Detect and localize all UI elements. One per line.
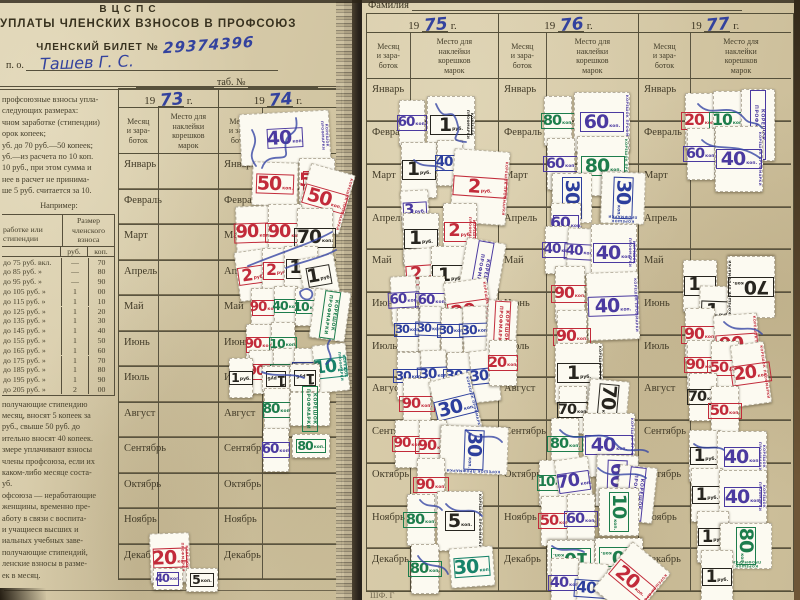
stamp-place-cell (159, 438, 218, 472)
rate-row: до 145 руб. »140 (2, 326, 114, 336)
stamp-value: 20 (613, 563, 642, 591)
month-label: Июль (119, 367, 159, 401)
stamp-unit: руб. (420, 172, 431, 178)
month-row: Июнь (119, 332, 218, 367)
year-handwritten: 75 (423, 14, 448, 36)
month-label: Октябрь (367, 464, 411, 506)
stamp-unit: руб. (717, 579, 728, 585)
month-row: Ноябрь (219, 509, 337, 544)
stamp-unit: коп. (429, 570, 440, 576)
stamp-unit: коп. (415, 123, 426, 129)
dues-stamp: 80коп. (264, 388, 290, 432)
text-line: женщины, временно пре- (2, 501, 116, 512)
stamp-value: 30 (417, 324, 431, 334)
month-row: Сентябрь (119, 438, 218, 473)
stamp-unit: руб. (705, 458, 716, 464)
stamp-value-box: 50коп. (708, 403, 742, 419)
stamp-place-cell (159, 190, 218, 224)
place-column-header: Место для наклейки корешков марок (691, 33, 791, 78)
dues-stamp: 60коп. (399, 100, 425, 146)
stamp-unit: руб. (481, 190, 492, 196)
stamp-value: 70 (558, 404, 576, 416)
dues-stamp: 80коп. (407, 494, 435, 546)
rate-cell: 00 (89, 287, 114, 297)
dues-stamp: 1руб. (229, 358, 253, 398)
month-label: Май (499, 250, 547, 292)
stamp-stub-label: КОРЕШОК ПРОФМАРКИ (473, 494, 482, 548)
rate-cell: 20 (89, 307, 114, 317)
year-handwritten: 77 (706, 14, 731, 36)
stamp-place-cell (263, 474, 337, 508)
stamp-value-box: 80коп. (263, 402, 291, 417)
stamp-unit: руб. (240, 378, 251, 384)
rate-row: до 155 руб. »150 (2, 336, 114, 346)
stamp-unit: коп. (201, 580, 212, 586)
rate-row: до 95 руб. »—90 (2, 277, 114, 287)
photo-bottom-left-shadow (0, 588, 46, 600)
stamp-unit: коп. (479, 568, 490, 574)
stamp-unit: руб. (707, 497, 718, 503)
rate-row: до 125 руб. »120 (2, 306, 114, 316)
stamp-value: 1 (231, 373, 239, 384)
name-underline: Ташев Г. С. (26, 58, 278, 71)
column-headers: Месяц и зара- ботокМесто для наклейки ко… (367, 33, 498, 79)
month-row: Апрель (639, 208, 791, 251)
stamp-value: 60 (546, 158, 564, 170)
year-header: 19 74 г. (219, 89, 337, 108)
month-label: Август (119, 403, 159, 437)
stamp-unit: коп. (562, 122, 573, 128)
month-column-header: Месяц и зара- боток (499, 33, 547, 78)
rate-row: до 205 руб. »200 (2, 385, 114, 395)
holder-name-handwritten: Ташев Г. С. (40, 51, 135, 73)
rate-table-subheader: руб. коп. (2, 247, 114, 258)
stamp-value-box: 30коп. (453, 556, 490, 579)
po-label: п. о. (6, 60, 24, 71)
dues-stamp: 5коп.КОРЕШОК ПРОФМАРКИ (437, 491, 483, 551)
rate-cell: до 175 руб. » (2, 356, 62, 366)
stamp-value-box: 70коп. (294, 228, 336, 248)
rate-cell: — (62, 258, 89, 268)
rate-cell: 90 (89, 277, 114, 287)
month-label: Декабрь (499, 549, 547, 591)
place-column-header: Место для наклейки корешков марок (159, 108, 218, 153)
dues-stamp: 40коп. (153, 568, 183, 590)
po-line: п. о. Ташев Г. С. (0, 58, 344, 71)
stamp-stub-label: КОРЕШОК ПРОФМАРКИ (728, 259, 737, 315)
stamp-value: 30 (469, 370, 488, 384)
rate-row: до 115 руб. »110 (2, 297, 114, 307)
membership-card-line: ЧЛЕНСКИЙ БИЛЕТ № 29374396 (0, 36, 344, 54)
rate-table: работке или стипендии Размер членского в… (2, 214, 115, 396)
stamp-value-box: 50коп. (256, 173, 295, 194)
stamp-place-cell (263, 545, 337, 579)
stamp-value: 40 (596, 245, 620, 261)
year-header: 19 75 г. (367, 14, 498, 33)
column-headers: Месяц и зара- ботокМесто для наклейки ко… (119, 108, 218, 154)
text-line: офсоюза — неработающие (2, 490, 116, 501)
year-header: 19 76 г. (499, 14, 638, 33)
month-label: Февраль (119, 190, 159, 224)
stamp-stub-label: КОРЕШОК ПРОФМАРКИ (753, 129, 762, 189)
dues-stamp: 40коп.КОРЕШОК ПРОФМАРКИ (586, 271, 640, 341)
stamp-value-box: 60коп. (683, 146, 719, 162)
rate-cell: 10 (89, 297, 114, 307)
stamp-value-box: 80коп. (547, 436, 583, 452)
dues-stamp: 1руб. (701, 550, 733, 600)
stamp-value-box: 80коп. (408, 561, 442, 577)
rate-cell: до 125 руб. » (2, 307, 62, 317)
stamp-value: 40 (272, 301, 287, 312)
text-line: чном заработке (стипендии) (2, 117, 116, 128)
dues-stamp: 40коп.КОРЕШОК ПРОФМАРКИ (715, 126, 763, 192)
rate-cell: 1 (62, 375, 89, 385)
stamp-value: 30 (615, 180, 632, 205)
rate-cell: до 155 руб. » (2, 336, 62, 346)
rate-row: до 135 руб. »130 (2, 316, 114, 326)
stamp-unit: коп. (421, 405, 432, 411)
month-label: Август (219, 403, 263, 437)
dues-stamp: 20коп. (489, 340, 517, 386)
stamp-value-box: 90коп. (399, 396, 435, 412)
stamp-value: 60 (584, 114, 608, 130)
month-label: Март (119, 225, 159, 259)
stamp-stub-label: КОРЕШОК ПРОФМАРКИ (628, 274, 639, 336)
rate-cell: до 135 руб. » (2, 316, 62, 326)
stamp-value-box: 20коп. (488, 355, 518, 371)
text-line: орок копеек; (2, 128, 116, 139)
month-row: Декабрь (219, 545, 337, 579)
stamp-value: 40 (544, 244, 561, 255)
rate-cell: 70 (89, 356, 114, 366)
stamp-value: 5 (192, 575, 200, 586)
stamp-value: 90 (416, 479, 434, 491)
photo-stage: ВЦСПС УПЛАТЫ ЧЛЕНСКИХ ВЗНОСОВ В ПРОФСОЮЗ… (0, 0, 800, 600)
stamp-value-box: 60коп. (580, 112, 624, 132)
stamp-value: 30 (395, 325, 409, 335)
stamp-value-box: 60коп. (397, 115, 427, 130)
stamp-value-box: 1руб. (305, 264, 332, 288)
stamp-unit: коп. (170, 578, 181, 584)
stamp-value: 10 (538, 477, 555, 488)
rate-cell: 1 (62, 336, 89, 346)
stamp-value: 1 (439, 117, 451, 133)
rate-cell: 90 (89, 375, 114, 385)
stamp-value: 90 (686, 359, 704, 371)
text-line: уб. до 70 руб.—50 копеек; (2, 140, 116, 151)
stamp-value: 80 (543, 115, 561, 127)
rate-cell: 1 (62, 365, 89, 375)
stamp-value: 50 (257, 175, 282, 192)
rate-cell: 1 (62, 326, 89, 336)
text-line: руб., свыше 50 руб. до (2, 421, 116, 432)
dues-rules-text: профсоюзные взносы упла-следующих размер… (2, 94, 116, 197)
dues-stamp: 10коп. (599, 488, 639, 536)
text-line: уб. (2, 478, 116, 489)
stamp-value: 20 (488, 357, 506, 369)
stamp-value: 1 (688, 278, 699, 293)
stamp-place-cell (159, 403, 218, 437)
stamp-value: 1 (694, 449, 705, 463)
stamp-unit: коп. (314, 446, 325, 452)
dues-stamp: 60коп. (263, 428, 289, 472)
rate-cell: до 185 руб. » (2, 365, 62, 375)
stamp-value: 2 (448, 224, 459, 239)
stamp-value: 1 (306, 268, 321, 286)
stamp-value: 40 (155, 574, 169, 584)
year-handwritten: 76 (559, 14, 584, 36)
stamp-unit: коп. (569, 445, 580, 451)
text-line: аботу в связи с воспита- (2, 513, 116, 524)
stamp-value: 90 (394, 438, 411, 449)
membership-card-number-handwritten: 29374396 (162, 33, 254, 57)
stamp-value-box: 1руб. (402, 160, 436, 180)
text-line: каком-либо месяце соста- (2, 467, 116, 478)
rate-cell: до 115 руб. » (2, 297, 62, 307)
stamp-stub-label: КОРЕШОК ПРОФМАРКИ (319, 113, 330, 159)
month-label: Сентябрь (219, 438, 263, 472)
stamp-value: 20 (684, 114, 704, 127)
month-label: Май (119, 296, 159, 330)
stamp-value: 30 (436, 398, 464, 420)
stamp-stub-label: КОРЕШОК ПРОФМАРКИ (603, 213, 641, 223)
dues-stamp: 30коп. (449, 546, 496, 589)
text-line: члены профсоюза, если их (2, 456, 116, 467)
month-column-header: Месяц и зара- боток (367, 33, 411, 78)
rub-header: руб. (61, 247, 88, 257)
stamp-value: 40 (595, 298, 620, 315)
stamp-unit: руб. (266, 373, 277, 379)
stamp-value: 40 (724, 449, 748, 465)
rate-cell: 1 (62, 307, 89, 317)
rate-cell: до 75 руб. вкл. (2, 258, 62, 268)
text-line: получающие стипендий, (2, 547, 116, 558)
rate-cell: до 145 руб. » (2, 326, 62, 336)
org-title: ВЦСПС (0, 4, 260, 15)
stamp-stub-label: КОРЕШОК ПРОФМАРКИ (302, 386, 319, 432)
page-title: УПЛАТЫ ЧЛЕНСКИХ ВЗНОСОВ В ПРОФСОЮЗ (0, 18, 344, 30)
stamp-value: 10 (293, 302, 308, 313)
stamp-value: 1 (306, 372, 315, 384)
stamp-place-cell (159, 225, 218, 259)
stamp-value: 90 (235, 225, 258, 241)
stamp-unit: коп. (425, 521, 436, 527)
place-column-header: Место для наклейки корешков марок (411, 33, 498, 78)
year-header: 19 73 г. (119, 89, 218, 108)
stamp-value-box: 5коп. (445, 511, 475, 531)
photo-right-edge (794, 0, 800, 600)
stamp-value: 1 (278, 373, 286, 384)
stamp-value: 70 (556, 474, 580, 492)
stamp-place-cell (159, 474, 218, 508)
month-label: Июнь (119, 332, 159, 366)
stamp-unit: коп. (565, 165, 576, 171)
dues-stamp: 5коп. (186, 568, 218, 592)
stamp-value: 80 (263, 404, 280, 415)
stamp-value: 20 (733, 366, 757, 384)
stamp-value-box: 10коп. (609, 492, 629, 532)
dues-stamp: 50коп. (711, 386, 739, 436)
stamp-value: 80 (738, 528, 754, 552)
month-row: Август (119, 403, 218, 438)
stamp-value-box: 60коп. (564, 511, 598, 527)
text-line: ительно вносят 40 копеек. (2, 433, 116, 444)
dues-stamp: 80коп. (411, 544, 439, 594)
stamp-unit: коп. (322, 240, 333, 246)
dues-stamp: 60коп. (567, 494, 595, 544)
page-gap (352, 0, 362, 600)
rate-col-earnings: работке или стипендии (2, 215, 63, 246)
left-page-header: ВЦСПС УПЛАТЫ ЧЛЕНСКИХ ВЗНОСОВ В ПРОФСОЮЗ… (0, 4, 344, 88)
stamp-place-cell (159, 296, 218, 330)
rate-row: до 85 руб. »—80 (2, 267, 114, 277)
rate-cell: 30 (89, 316, 114, 326)
stamp-unit: коп. (611, 519, 617, 530)
stamp-unit: коп. (507, 364, 518, 370)
stamp-value: 40 (436, 157, 453, 168)
month-label: Декабрь (367, 549, 411, 591)
text-line: месяц, вносят 5 копеек за (2, 410, 116, 421)
stamp-value-box: 60коп. (543, 156, 579, 172)
rate-cell: 1 (62, 297, 89, 307)
stamp-value: 40 (266, 130, 291, 147)
text-line: ленские взносы в разме- (2, 558, 116, 569)
rate-rows: до 75 руб. вкл.—70до 85 руб. »—80до 95 р… (2, 257, 114, 394)
stamp-value: 50 (710, 405, 728, 417)
stamp-value: 40 (565, 246, 582, 258)
month-label: Сентябрь (639, 421, 691, 463)
rate-cell: 00 (89, 385, 114, 395)
stamp-value: 5 (448, 513, 460, 529)
rate-cell: до 85 руб. » (2, 267, 62, 277)
right-page-footer-text: ШФ. Г (370, 590, 394, 600)
stamp-value: 1 (702, 530, 713, 544)
stamp-value-box: 60коп. (262, 442, 290, 457)
stamp-value-box: 40коп. (157, 572, 179, 586)
example-label: Например: (2, 200, 116, 211)
month-row: Октябрь (119, 474, 218, 509)
stamp-value: 60 (686, 148, 704, 160)
stamp-stub-label: КОРЕШОК ПРОФМАРКИ (465, 99, 474, 151)
stamp-value: 80 (550, 438, 568, 450)
stamp-unit: коп. (585, 520, 596, 526)
month-label: Январь (119, 154, 159, 188)
rate-cell: 40 (89, 326, 114, 336)
stamp-unit: коп. (581, 482, 593, 489)
month-label: Август (639, 378, 691, 420)
dues-stamp: 80коп. (292, 434, 330, 458)
stamp-stub-label: КОРЕШОК ПРОФМАРКИ (757, 473, 766, 521)
stamp-value: 40 (721, 151, 745, 167)
rate-cell: 1 (62, 356, 89, 366)
month-label: Апрель (119, 261, 159, 295)
stamp-value: 60 (398, 117, 415, 128)
left-page-bottom-rule (4, 590, 336, 591)
membership-card-label: ЧЛЕНСКИЙ БИЛЕТ № (36, 42, 159, 53)
dues-stamp: 30коп. (462, 306, 488, 355)
stamp-value-box: 80коп. (296, 439, 326, 454)
rate-cell: 80 (89, 365, 114, 375)
month-label: Октябрь (219, 474, 263, 508)
stamp-value: 30 (466, 432, 483, 457)
stamp-value-box: 80коп. (541, 113, 575, 129)
text-line: и учащиеся высших и (2, 524, 116, 535)
rate-cell: 1 (62, 346, 89, 356)
stamp-value: 30 (439, 326, 453, 336)
stamp-unit: коп. (729, 412, 740, 418)
stamp-value: 30 (564, 180, 580, 204)
rate-cell: до 195 руб. » (2, 375, 62, 385)
stamp-value-box: 40коп. (266, 127, 303, 149)
dues-stamp: 60коп. (687, 128, 715, 180)
stamp-unit: коп. (292, 140, 303, 146)
stamp-stub-label: КОРЕШОК ПРОФМАРКИ (318, 290, 341, 340)
stamp-value-box: 1руб. (702, 568, 732, 586)
text-line: 10 руб., при этом сумма и (2, 162, 116, 173)
rate-cell: 1 (62, 316, 89, 326)
month-row: Февраль (119, 190, 218, 225)
rate-cell: 50 (89, 336, 114, 346)
month-column-header: Месяц и зара- боток (639, 33, 691, 78)
stamp-value-box: 1руб. (692, 486, 722, 504)
stamp-value: 40 (550, 577, 568, 589)
stamp-value: 30 (453, 559, 479, 577)
stamp-unit: руб. (452, 128, 463, 134)
stamp-place-cell (159, 261, 218, 295)
month-row: Июль (119, 367, 218, 402)
rate-row: до 175 руб. »170 (2, 355, 114, 365)
dues-stamp: 30коп.КОРЕШОК ПРОФМАРКИ (600, 171, 646, 225)
stamp-value: 90 (245, 339, 262, 350)
dues-stamp: КОРЕШОК ПРОФМАРКИ (309, 288, 352, 343)
stamp-value: 2 (467, 178, 480, 195)
stamp-value: 1 (567, 365, 579, 381)
rate-col-due: Размер членского взноса (63, 215, 114, 246)
stamp-value: 80 (297, 441, 312, 452)
month-label: Апрель (639, 208, 691, 250)
dues-stamp: 70коп.КОРЕШОК ПРОФМАРКИ (727, 256, 775, 318)
stamp-value: 50 (305, 186, 333, 208)
stamp-place-cell (263, 509, 337, 543)
rate-cell: до 105 руб. » (2, 287, 62, 297)
month-label: Сентябрь (119, 438, 159, 472)
dues-stamp: КОРЕШОК ПРОФМАРКИ (290, 392, 330, 426)
stamp-value-box: 80коп. (403, 512, 439, 528)
column-headers: Месяц и зара- ботокМесто для наклейки ко… (639, 33, 791, 79)
stamp-value: 80 (406, 514, 424, 526)
rate-row: до 75 руб. вкл.—70 (2, 257, 114, 267)
stamp-unit: коп. (282, 187, 293, 193)
stamp-value: 70 (745, 279, 769, 295)
stamp-value: 40 (591, 437, 615, 453)
stamp-unit: коп. (279, 450, 290, 456)
stamp-unit: коп. (461, 524, 472, 530)
year-group: 19 73 г.Месяц и зара- ботокМесто для нак… (119, 89, 219, 579)
rate-cell: 2 (62, 385, 89, 395)
rate-cell: 80 (89, 267, 114, 277)
stamp-place-cell (159, 367, 218, 401)
stamp-value: 10 (611, 494, 627, 518)
stamp-place-cell (691, 208, 791, 250)
stamp-value: 70 (688, 391, 706, 403)
stamp-value: 90 (268, 225, 291, 240)
stamp-value-box: 1руб. (690, 447, 720, 465)
month-row: Октябрь (219, 474, 337, 509)
stamp-stub-label: КОРЕШОК ПРОФМАРКИ (442, 463, 504, 474)
rate-cell: — (62, 267, 89, 277)
stamp-value: 50 (540, 515, 558, 527)
dues-stamp: 30коп.КОРЕШОК ПРОФМАРКИ (439, 425, 509, 475)
